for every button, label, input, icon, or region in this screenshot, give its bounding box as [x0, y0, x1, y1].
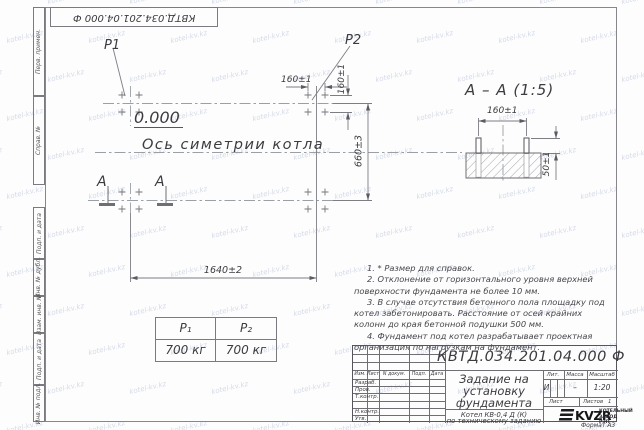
- level-mark-label: 0.000: [134, 108, 183, 128]
- sheets-value: 1: [608, 399, 611, 405]
- format-label: Формат А3: [581, 422, 615, 429]
- row-label-tkontr: Т.контр.: [355, 394, 378, 400]
- row-label-prov: Пров.: [355, 387, 371, 393]
- dim-foundation-width: 1640±2: [204, 265, 242, 276]
- kvzr-logo-icon: [559, 409, 575, 421]
- dim-detail-bolt-spacing: 160±1: [487, 106, 517, 116]
- note-1: 1. * Размер для справок.: [354, 263, 616, 274]
- loads-table-header-p1: P₁: [156, 318, 216, 340]
- col-header-ndoc: N докум.: [383, 372, 405, 377]
- row-label-razrab: Разраб.: [355, 380, 376, 386]
- lit-header: Лит.: [547, 372, 559, 378]
- title-block: КВТД.034.201.04.000 Ф Изм. Лист N докум.…: [352, 345, 617, 422]
- loads-table-value-p1: 700 кг: [156, 340, 216, 362]
- technical-notes: 1. * Размер для справок. 2. Отклонение о…: [354, 263, 616, 353]
- mass-value: –: [573, 383, 577, 392]
- col-header-list: Лист: [367, 372, 379, 377]
- section-letter-left: А: [97, 174, 107, 190]
- loads-table: P₁ P₂ 700 кг 700 кг: [155, 317, 277, 362]
- col-header-podp: Подп.: [412, 372, 427, 377]
- col-header-data: Дата: [431, 372, 443, 377]
- boiler-axis-label: Ось симетрии котла: [142, 137, 324, 153]
- sheet-label: Лист: [549, 399, 563, 405]
- lit-value: И: [544, 383, 550, 392]
- section-detail-title: А – А (1:5): [465, 81, 554, 99]
- drawing-subtitle-line2: по техническому заданию: [447, 417, 542, 425]
- load-point-p1-label: P1: [104, 38, 120, 53]
- drawing-title-line3: фундамента: [456, 396, 532, 410]
- loads-table-value-p2: 700 кг: [216, 340, 276, 362]
- note-3: 3. В случае отсутствия бетонного пола пл…: [354, 297, 616, 331]
- load-point-p2-label: P2: [345, 33, 361, 48]
- scale-value: 1:20: [594, 383, 611, 392]
- scale-header: Масштаб: [589, 372, 615, 378]
- drawing-sheet: kotel-kv.kzkotel-kv.kzkotel-kv.kzkotel-k…: [0, 0, 644, 430]
- dim-bolt-spacing-vertical: 160±1: [337, 64, 347, 94]
- note-2: 2. Отклонение от горизонтального уровня …: [354, 274, 616, 297]
- section-letter-right: А: [155, 174, 165, 190]
- row-label-utv: Утв.: [355, 416, 366, 422]
- dim-foundation-height: 660±3: [354, 135, 365, 167]
- title-block-doc-number: КВТД.034.201.04.000 Ф: [437, 349, 625, 365]
- sheets-label: Листов: [583, 399, 603, 405]
- mass-header: Масса: [566, 372, 583, 378]
- col-header-izm: Изм.: [354, 372, 365, 377]
- dim-bolt-spacing-horizontal: 160±1: [281, 75, 311, 85]
- dim-detail-protrusion: 50±1: [542, 152, 552, 177]
- loads-table-header-p2: P₂: [216, 318, 276, 340]
- row-label-nkontr: Н.контр.: [355, 409, 379, 415]
- org-name-line1: КОТЕЛЬНЫЙ: [599, 409, 633, 414]
- extension-lines: [113, 46, 372, 282]
